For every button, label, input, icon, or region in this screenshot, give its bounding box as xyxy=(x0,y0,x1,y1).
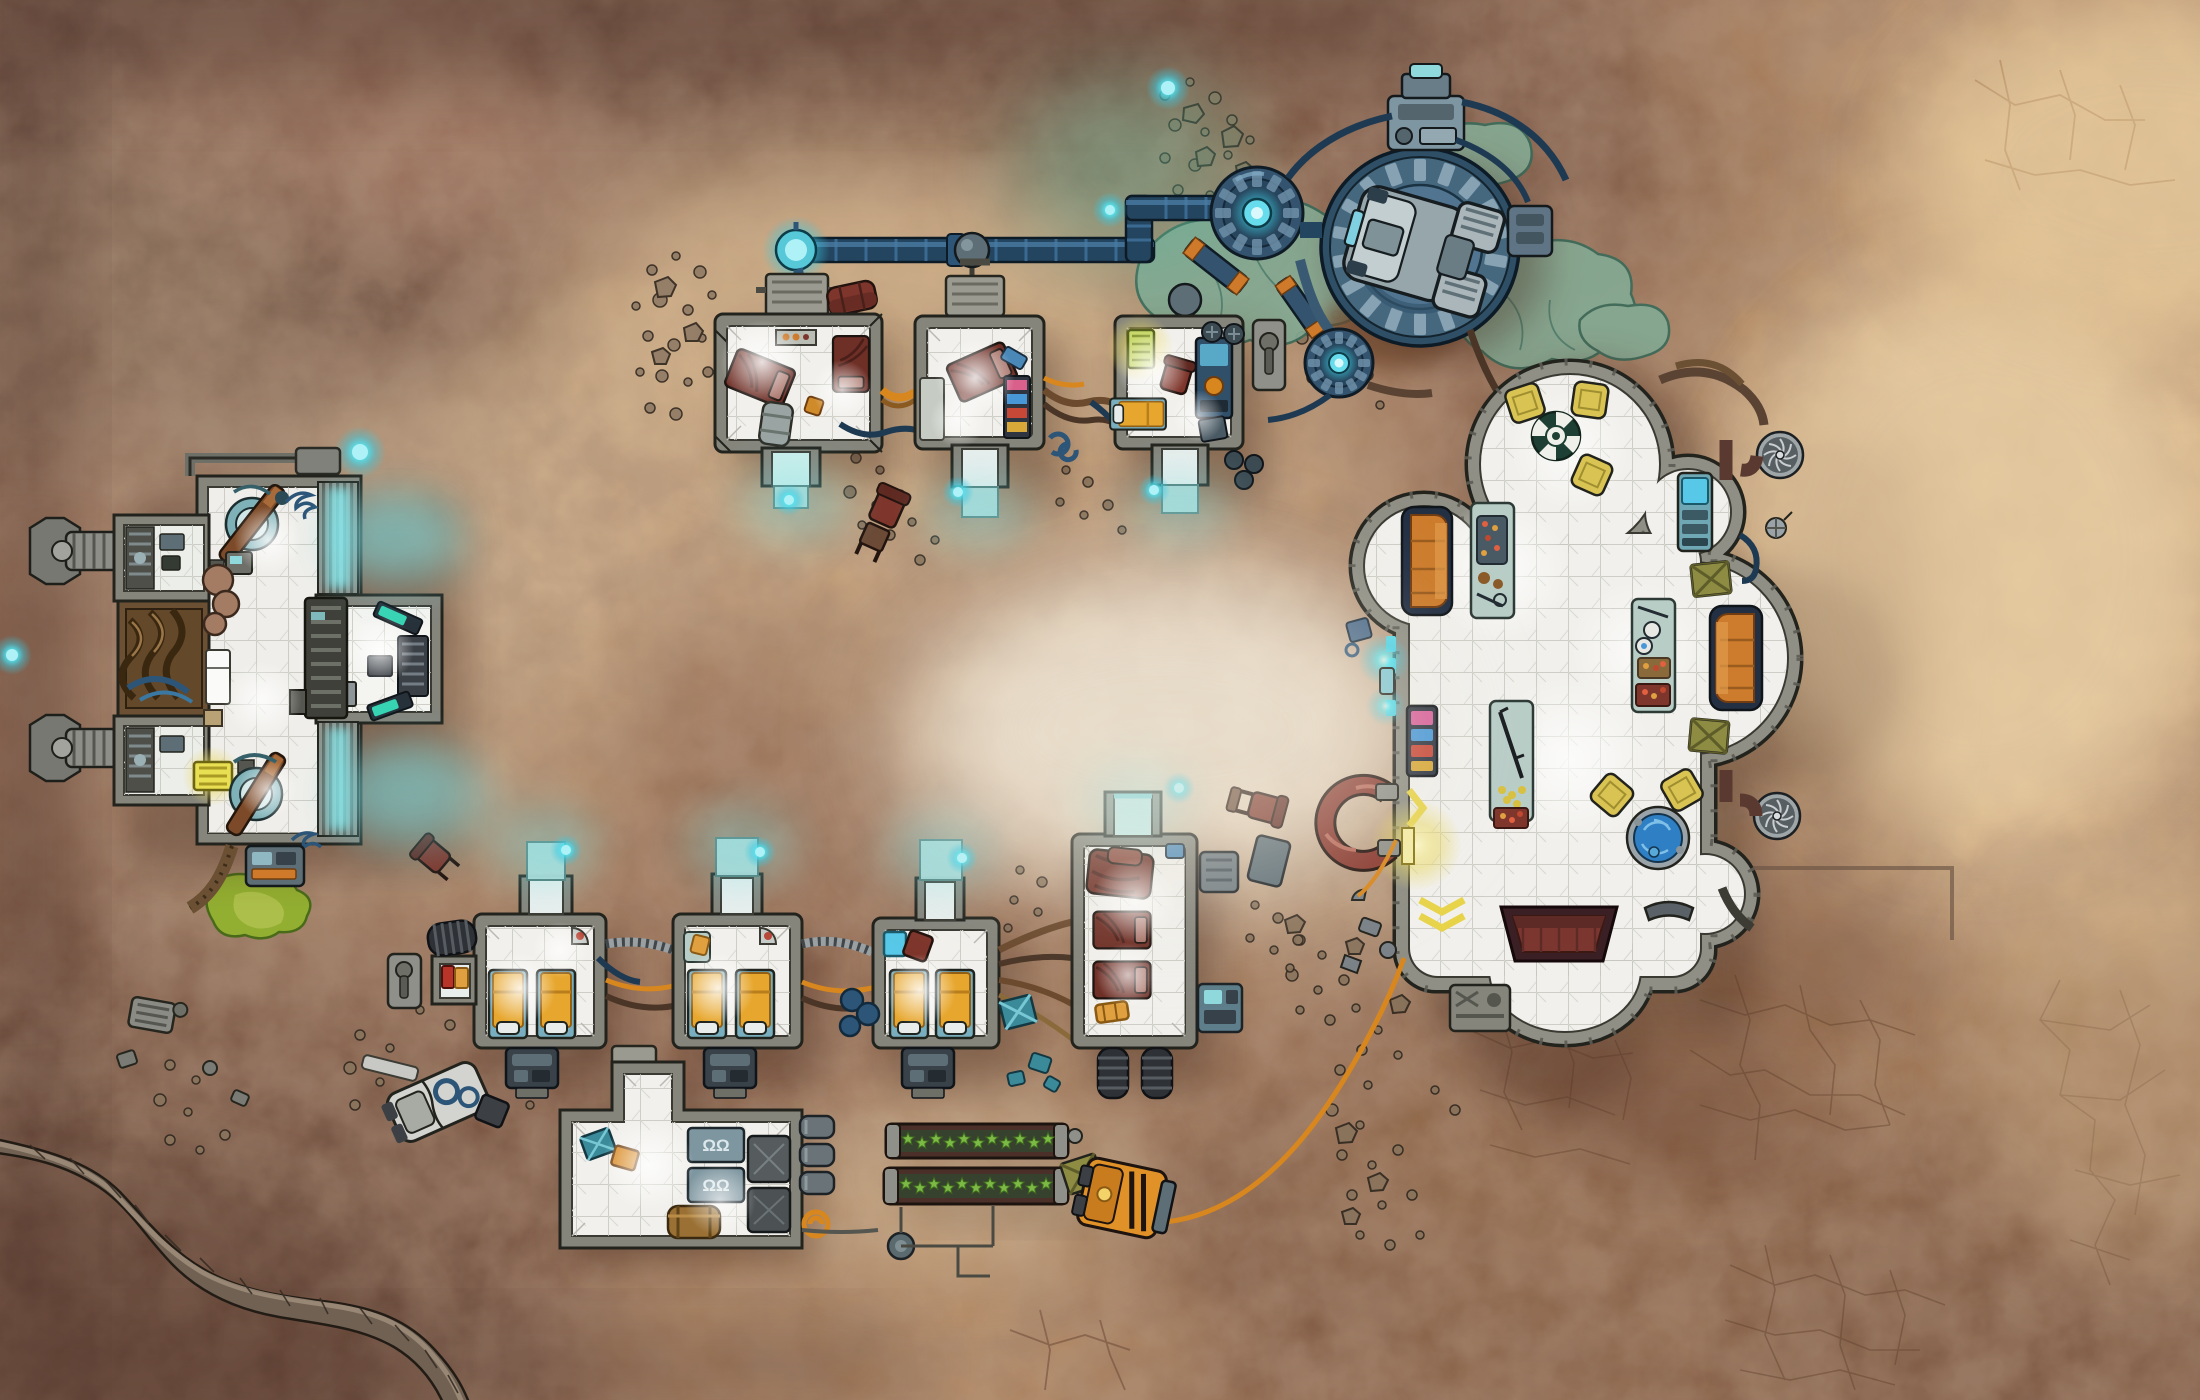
svg-text:ΩΩ: ΩΩ xyxy=(702,1136,729,1155)
